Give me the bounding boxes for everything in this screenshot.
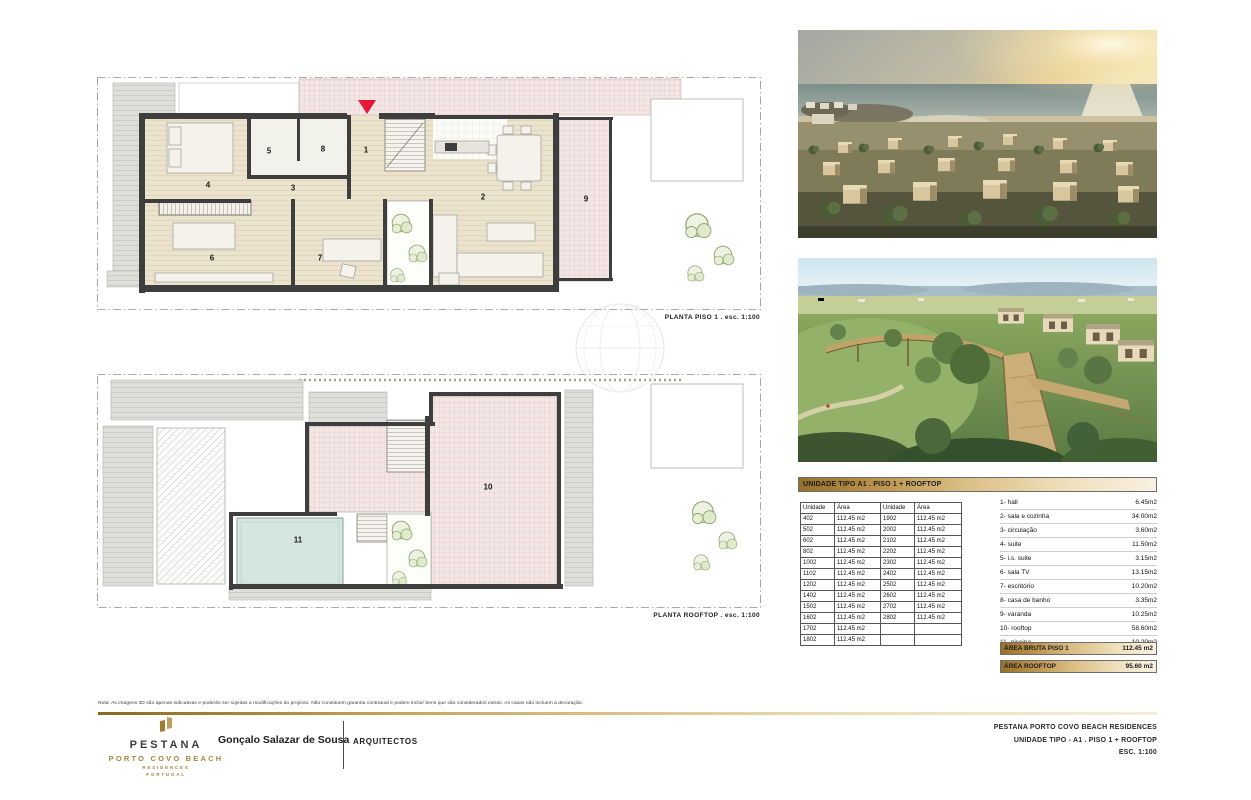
legend-area: 10.25m2 [1132, 611, 1157, 618]
brand-location: PORTO COVO BEACH [96, 754, 236, 763]
col-header: Unidade [801, 503, 835, 514]
table-cell: 112.45 m2 [915, 514, 962, 525]
legend-label: 9- varanda [1000, 611, 1031, 618]
table-cell: 2002 [881, 525, 915, 536]
table-cell: 112.45 m2 [835, 613, 881, 624]
table-cell: 1202 [801, 580, 835, 591]
room-number: 8 [321, 145, 325, 154]
table-cell: 112.45 m2 [835, 580, 881, 591]
table-cell: 112.45 m2 [915, 569, 962, 580]
table-cell: 112.45 m2 [835, 602, 881, 613]
legend-area: 6.45m2 [1135, 499, 1157, 506]
table-cell: 1802 [801, 635, 835, 646]
table-cell: 1502 [801, 602, 835, 613]
unit-type-title: UNIDADE TIPO A1 . PISO 1 + ROOFTOP [803, 481, 941, 488]
table-cell [915, 624, 962, 635]
table-cell [881, 635, 915, 646]
table-cell: 112.45 m2 [835, 569, 881, 580]
table-row: 1102112.45 m22402112.45 m2 [801, 569, 962, 580]
room-number: 2 [481, 193, 485, 202]
table-cell: 112.45 m2 [835, 525, 881, 536]
room-number: 4 [206, 181, 210, 190]
table-row: 1002112.45 m22302112.45 m2 [801, 558, 962, 569]
legend-list: 1- hall6.45m22- sala e cozinha34.00m23- … [1000, 496, 1157, 649]
project-scale: ESC. 1:100 [994, 747, 1157, 760]
table-cell: 112.45 m2 [915, 547, 962, 558]
table-cell: 112.45 m2 [835, 635, 881, 646]
table-cell: 1602 [801, 613, 835, 624]
room-number: 10 [484, 483, 493, 492]
legend-label: 8- casa de banho [1000, 597, 1050, 604]
legend-label: 5- i.s. suite [1000, 555, 1031, 562]
table-cell: 1702 [801, 624, 835, 635]
total-label: ÁREA ROOFTOP [1004, 663, 1056, 670]
room-number: 9 [584, 195, 588, 204]
globe-watermark [572, 300, 668, 396]
table-cell: 1002 [801, 558, 835, 569]
unit-type-title-bar: UNIDADE TIPO A1 . PISO 1 + ROOFTOP [798, 477, 1157, 492]
table-cell: 112.45 m2 [915, 536, 962, 547]
table-cell: 2402 [881, 569, 915, 580]
area-legend: 1- hall6.45m22- sala e cozinha34.00m23- … [1000, 496, 1157, 649]
floorplan-rooftop: 10 11 PLANTA ROOFTOP . esc. 1:100 [95, 372, 763, 622]
project-unit: UNIDADE TIPO - A1 . PISO 1 + ROOFTOP [994, 735, 1157, 748]
table-cell: 1402 [801, 591, 835, 602]
total-area-rooftop: ÁREA ROOFTOP 95.60 m2 [1000, 660, 1157, 673]
table-cell: 802 [801, 547, 835, 558]
total-value: 112.45 m2 [1122, 645, 1153, 652]
table-cell: 2502 [881, 580, 915, 591]
units-table-body: 402112.45 m21902112.45 m2502112.45 m2200… [801, 514, 962, 646]
table-cell: 2302 [881, 558, 915, 569]
footer-vertical-divider [343, 721, 344, 769]
room-number: 5 [267, 147, 271, 156]
table-cell: 2102 [881, 536, 915, 547]
table-cell: 112.45 m2 [835, 547, 881, 558]
table-cell: 112.45 m2 [835, 514, 881, 525]
legend-area: 10.20m2 [1132, 583, 1157, 590]
legend-label: 6- sala TV [1000, 569, 1030, 576]
table-row: 1702112.45 m2 [801, 624, 962, 635]
col-header: Área [915, 503, 962, 514]
room-number: 7 [318, 254, 322, 263]
table-cell: 112.45 m2 [915, 591, 962, 602]
table-cell: 2702 [881, 602, 915, 613]
brand-portugal: PORTUGAL [96, 772, 236, 777]
table-cell: 112.45 m2 [915, 613, 962, 624]
room-number: 6 [210, 254, 214, 263]
legend-item: 10- rooftop58.60m2 [1000, 622, 1157, 636]
table-cell [915, 635, 962, 646]
legend-item: 1- hall6.45m2 [1000, 496, 1157, 510]
legend-label: 3- circulação [1000, 527, 1037, 534]
room-number: 3 [291, 184, 295, 193]
legend-item: 4- suite11.50m2 [1000, 538, 1157, 552]
legend-item: 8- casa de banho3.35m2 [1000, 594, 1157, 608]
project-name: PESTANA PORTO COVO BEACH RESIDENCES [994, 722, 1157, 735]
table-cell: 112.45 m2 [835, 536, 881, 547]
table-row: 502112.45 m22002112.45 m2 [801, 525, 962, 536]
legend-item: 7- escritório10.20m2 [1000, 580, 1157, 594]
total-value: 95.60 m2 [1126, 663, 1153, 670]
table-cell: 112.45 m2 [835, 591, 881, 602]
legend-item: 6- sala TV13.15m2 [1000, 566, 1157, 580]
legend-item: 3- circulação3.60m2 [1000, 524, 1157, 538]
table-cell: 112.45 m2 [915, 580, 962, 591]
table-cell: 2802 [881, 613, 915, 624]
table-cell: 1902 [881, 514, 915, 525]
legend-label: 1- hall [1000, 499, 1018, 506]
table-row: 802112.45 m22202112.45 m2 [801, 547, 962, 558]
legend-label: 10- rooftop [1000, 625, 1031, 632]
table-row: 1202112.45 m22502112.45 m2 [801, 580, 962, 591]
plan-caption-piso1: PLANTA PISO 1 . esc. 1:100 [665, 314, 760, 321]
footer-divider-rule [98, 712, 1157, 715]
table-cell: 112.45 m2 [915, 602, 962, 613]
table-row: 1402112.45 m22602112.45 m2 [801, 591, 962, 602]
brand-name: PESTANA [96, 739, 236, 751]
table-cell: 1102 [801, 569, 835, 580]
drawing-sheet: 1 2 3 4 5 6 7 8 9 PLANTA PISO 1 . esc. 1… [0, 0, 1251, 800]
table-cell: 112.45 m2 [835, 624, 881, 635]
architect-title: ARQUITECTOS [353, 737, 418, 746]
table-row: 1502112.45 m22702112.45 m2 [801, 602, 962, 613]
render-aerial-beach [798, 30, 1157, 238]
legend-label: 4- suite [1000, 541, 1021, 548]
legend-area: 3.35m2 [1135, 597, 1157, 604]
total-area-piso1: ÁREA BRUTA PISO 1 112.45 m2 [1000, 642, 1157, 655]
total-label: ÁREA BRUTA PISO 1 [1004, 645, 1069, 652]
room-number: 1 [364, 146, 368, 155]
table-cell: 2602 [881, 591, 915, 602]
legend-item: 5- i.s. suite3.15m2 [1000, 552, 1157, 566]
table-cell: 2202 [881, 547, 915, 558]
col-header: Área [835, 503, 881, 514]
floorplan-piso1: 1 2 3 4 5 6 7 8 9 PLANTA PISO 1 . esc. 1… [95, 75, 763, 325]
table-cell: 402 [801, 514, 835, 525]
brand-residences: RESIDENCES [96, 765, 236, 770]
legend-area: 3.60m2 [1135, 527, 1157, 534]
legend-area: 58.60m2 [1132, 625, 1157, 632]
disclaimer-note: Nota: As imagens 3D são apenas indicativ… [98, 701, 583, 706]
table-cell: 502 [801, 525, 835, 536]
units-table: Unidade Área Unidade Área 402112.45 m219… [800, 502, 962, 646]
table-header-row: Unidade Área Unidade Área [801, 503, 962, 514]
legend-area: 34.00m2 [1132, 513, 1157, 520]
table-row: 602112.45 m22102112.45 m2 [801, 536, 962, 547]
pestana-brand-block: PESTANA PORTO COVO BEACH RESIDENCES PORT… [96, 717, 236, 777]
render-park-boardwalk [798, 258, 1157, 462]
table-row: 402112.45 m21902112.45 m2 [801, 514, 962, 525]
legend-item: 2- sala e cozinha34.00m2 [1000, 510, 1157, 524]
table-cell: 112.45 m2 [915, 525, 962, 536]
room-number: 11 [294, 536, 302, 545]
legend-area: 11.50m2 [1132, 541, 1157, 548]
pestana-logo-icon [157, 717, 175, 732]
legend-item: 9- varanda10.25m2 [1000, 608, 1157, 622]
plan-caption-rooftop: PLANTA ROOFTOP . esc. 1:100 [653, 612, 760, 619]
rooftop-plan-drawing [95, 372, 763, 610]
table-row: 1802112.45 m2 [801, 635, 962, 646]
table-cell: 112.45 m2 [835, 558, 881, 569]
table-cell: 602 [801, 536, 835, 547]
piso1-plan-drawing [95, 75, 763, 312]
col-header: Unidade [881, 503, 915, 514]
legend-label: 7- escritório [1000, 583, 1034, 590]
legend-area: 13.15m2 [1132, 569, 1157, 576]
architect-name: Gonçalo Salazar de Sousa [218, 734, 349, 746]
legend-area: 3.15m2 [1135, 555, 1157, 562]
legend-label: 2- sala e cozinha [1000, 513, 1049, 520]
table-cell: 112.45 m2 [915, 558, 962, 569]
table-row: 1602112.45 m22802112.45 m2 [801, 613, 962, 624]
table-cell [881, 624, 915, 635]
project-title-block: PESTANA PORTO COVO BEACH RESIDENCES UNID… [994, 722, 1157, 760]
